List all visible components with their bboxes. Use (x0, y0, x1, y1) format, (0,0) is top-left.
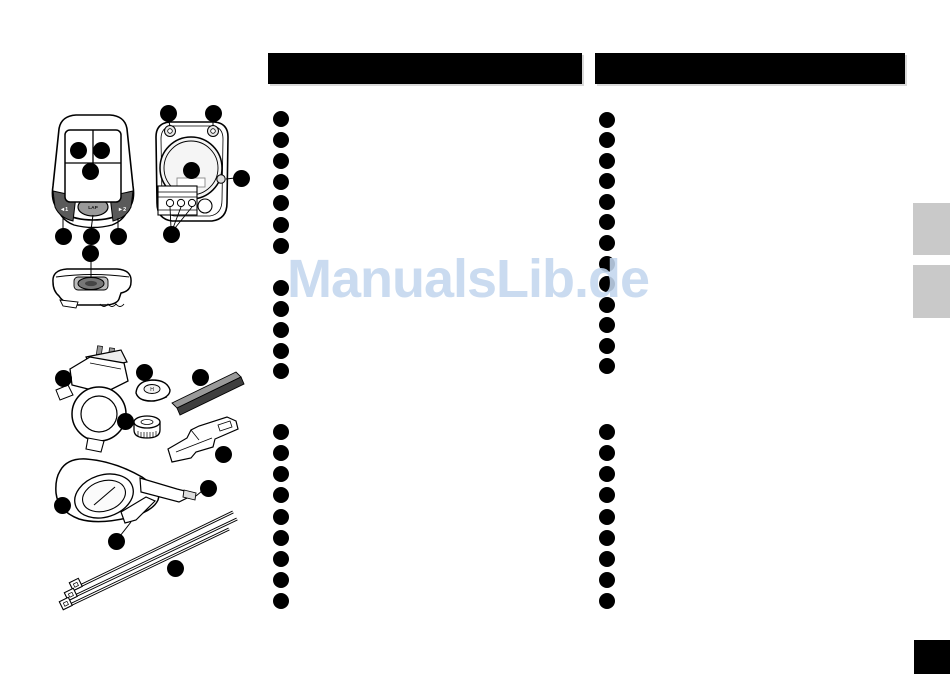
callout-dot-back-screw-left (160, 105, 177, 122)
list-bullet-right (599, 509, 615, 525)
list-bullet-right (599, 194, 615, 210)
callout-dot-back-battery (183, 162, 200, 179)
list-bullet-left (273, 217, 289, 233)
list-bullet-left (273, 424, 289, 440)
list-bullet-left (273, 551, 289, 567)
callout-dot-handlebar-bracket (55, 370, 72, 387)
list-bullet-right (599, 424, 615, 440)
list-bullet-left (273, 153, 289, 169)
callout-dot-sensor-arm (108, 533, 125, 550)
list-bullet-right (599, 530, 615, 546)
wheel-magnet (134, 416, 160, 438)
callout-dot-spoke-magnet (136, 364, 153, 381)
section-header-bar-right (595, 53, 905, 84)
list-bullet-right (599, 173, 615, 189)
list-bullet-left (273, 363, 289, 379)
callout-dot-front-button-right (110, 228, 127, 245)
callout-dot-front-display-right (93, 142, 110, 159)
callout-dot-sensor-body (54, 497, 71, 514)
callout-dot-cable-ties (167, 560, 184, 577)
parts-illustration: LAP ◄1 ►2 (0, 0, 950, 674)
list-bullet-left (273, 343, 289, 359)
list-bullet-left (273, 111, 289, 127)
callout-dot-front-button-left (55, 228, 72, 245)
lap-button-label: LAP (88, 205, 98, 211)
list-bullet-left (273, 487, 289, 503)
left-button-label: ◄1 (60, 207, 69, 213)
list-bullet-right (599, 593, 615, 609)
list-bullet-right (599, 214, 615, 230)
list-bullet-left (273, 572, 289, 588)
callout-dot-rail-adapter (215, 446, 232, 463)
list-bullet-left (273, 530, 289, 546)
callout-dot-back-screw-right (205, 105, 222, 122)
page-corner-block (914, 640, 950, 674)
right-button-label: ►2 (118, 207, 127, 213)
callout-dot-back-contacts (163, 226, 180, 243)
callout-dot-front-button-lap (83, 228, 100, 245)
callout-dot-sensor-pin (200, 480, 217, 497)
edge-index-tab-1 (913, 203, 950, 255)
list-bullet-left (273, 593, 289, 609)
list-bullet-left (273, 322, 289, 338)
list-bullet-right (599, 358, 615, 374)
list-bullet-left (273, 195, 289, 211)
callout-dot-front-display-left (70, 142, 87, 159)
computer-bottom-view (53, 259, 131, 308)
list-bullet-right (599, 445, 615, 461)
list-bullet-right (599, 572, 615, 588)
list-bullet-right (599, 153, 615, 169)
spoke-magnet: H (136, 380, 170, 401)
callout-dot-rubber-shim (192, 369, 209, 386)
speed-sensor (56, 459, 202, 536)
callout-dot-back-side-button (233, 170, 250, 187)
magnet-mark-label: H (150, 387, 154, 393)
handlebar-bracket (56, 346, 128, 452)
list-bullet-right (599, 112, 615, 128)
list-bullet-left (273, 509, 289, 525)
list-bullet-left (273, 445, 289, 461)
callout-dot-front-display-bottom (82, 163, 99, 180)
edge-index-tab-2 (913, 265, 950, 318)
list-bullet-right (599, 487, 615, 503)
section-header-bar-left (268, 53, 582, 84)
list-bullet-right (599, 466, 615, 482)
list-bullet-left (273, 174, 289, 190)
list-bullet-right (599, 338, 615, 354)
cable-ties (59, 512, 237, 610)
list-bullet-left (273, 132, 289, 148)
callout-dot-wheel-magnet (117, 413, 134, 430)
list-bullet-right (599, 551, 615, 567)
list-bullet-right (599, 317, 615, 333)
watermark: ManualsLib.de (287, 252, 649, 306)
list-bullet-left (273, 466, 289, 482)
manual-page: LAP ◄1 ►2 (0, 0, 950, 674)
list-bullet-right (599, 132, 615, 148)
callout-dot-bottom-view-button (82, 245, 99, 262)
